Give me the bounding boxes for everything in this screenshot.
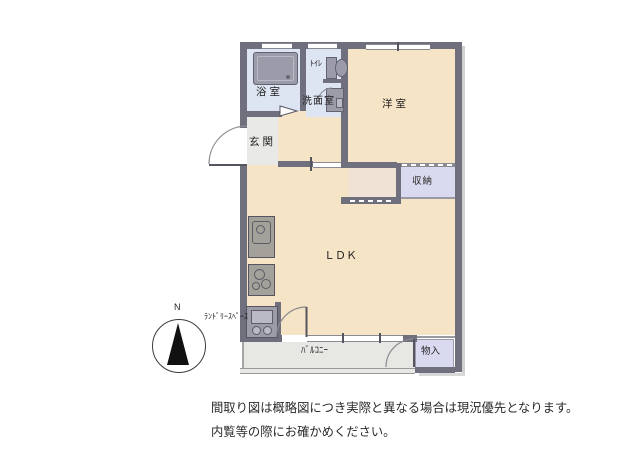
closet-label: 物入 [421, 347, 440, 357]
washing-machine [246, 306, 278, 338]
wall-closet-a-top [348, 162, 397, 168]
kitchen-sink-counter [248, 216, 275, 258]
balcony-label: ﾊﾞﾙｺﾆｰ [301, 346, 328, 355]
kitchen-stove [248, 264, 275, 296]
wall-bottom-mid [403, 335, 417, 342]
kitchen-faucet [256, 225, 265, 234]
washroom-label: 洗面室 [302, 97, 335, 107]
storage-bottom-line [401, 197, 455, 199]
closet-a-door-dashes [350, 200, 394, 202]
wall-shadow-right [462, 46, 465, 374]
closet-top-line [417, 336, 455, 338]
wall-shadow-bottom [419, 373, 465, 376]
disclaimer-line-2: 内覧等の際にお確かめください。 [211, 421, 578, 445]
bathtub [253, 52, 298, 85]
burner [252, 282, 260, 290]
wall-hall-ldk [278, 161, 313, 167]
wall-closet-bottom [415, 367, 455, 373]
compass-north-label: N [174, 303, 181, 312]
bathroom-window [262, 43, 292, 49]
floor-plan: 浴室 ﾄｲﾚ 洗面室 洋室 玄関 収納 ＬＤＫ ﾗﾝﾄﾞﾘｰｽﾍﾟｰｽ ﾊﾞﾙｺ… [0, 0, 640, 476]
bathtub-drain [286, 75, 290, 79]
wall-right [455, 42, 462, 372]
toilet-bowl [335, 59, 348, 77]
compass-needle [167, 323, 189, 365]
disclaimer-line-1: 間取り図は概略図につき実際と異なる場合は現況優先となります。 [211, 397, 578, 421]
storage-label: 収納 [412, 177, 433, 187]
burner [261, 279, 271, 289]
washer-door [251, 310, 273, 324]
washbasin-knob [336, 98, 343, 108]
storage-door-dashes [402, 164, 454, 166]
washer-knob [252, 326, 261, 335]
compass: N [148, 303, 210, 375]
toilet-label: ﾄｲﾚ [310, 60, 322, 68]
wall-toilet-divider [323, 79, 341, 83]
window-tick [342, 333, 344, 343]
window-tick [397, 42, 399, 51]
bathroom-label: 浴室 [256, 87, 283, 98]
balcony-sliding-window [307, 335, 403, 342]
entrance-label: 玄関 [249, 137, 276, 148]
washer-knob [263, 326, 272, 335]
hall-sliding-door [313, 162, 341, 168]
western-room-label: 洋室 [382, 99, 409, 110]
wall-bath-bottom [247, 111, 282, 117]
toilet-window [308, 43, 337, 49]
ldk-label: ＬＤＫ [324, 251, 357, 262]
entrance-door-arc [209, 126, 247, 164]
wall-left-upper [240, 49, 247, 128]
disclaimer: 間取り図は概略図につき実際と異なる場合は現況優先となります。 内覧等の際にお確か… [211, 397, 578, 444]
door-tick [310, 157, 312, 171]
window-tick [379, 333, 381, 343]
balcony-floor [242, 342, 417, 368]
balcony-rail [240, 368, 415, 374]
laundry-space-label: ﾗﾝﾄﾞﾘｰｽﾍﾟｰｽ [204, 313, 248, 321]
closet-a-floor [348, 168, 396, 198]
